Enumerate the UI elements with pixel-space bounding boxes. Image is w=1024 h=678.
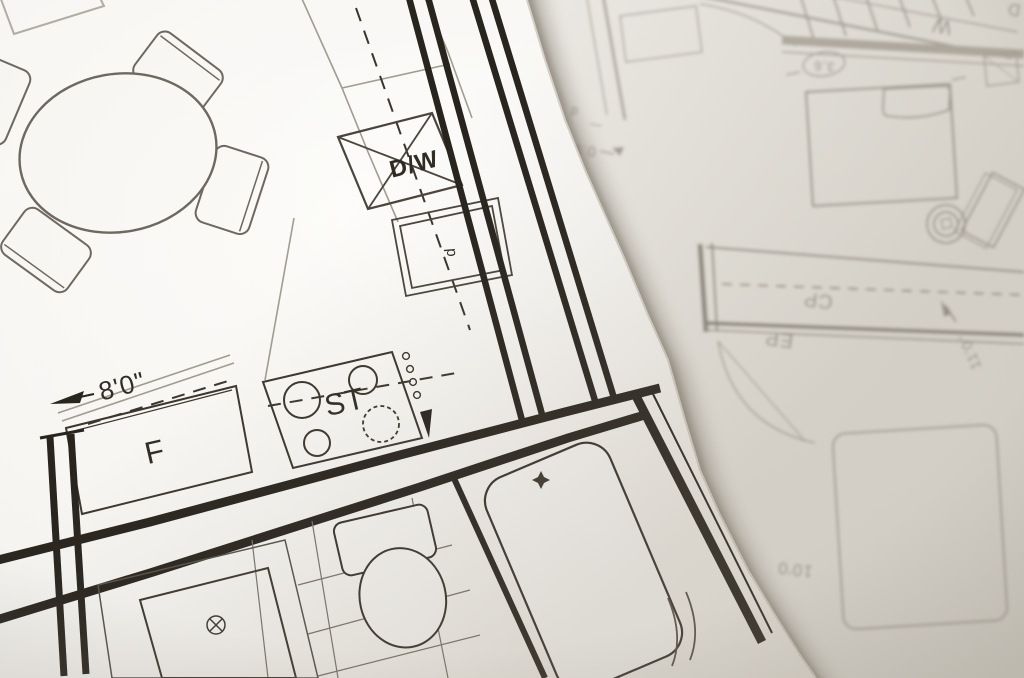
blueprint-scene: W D 3,6	[0, 0, 1024, 678]
blueprint-photo: W D 3,6	[0, 0, 1024, 678]
corner-shading	[0, 0, 1024, 678]
